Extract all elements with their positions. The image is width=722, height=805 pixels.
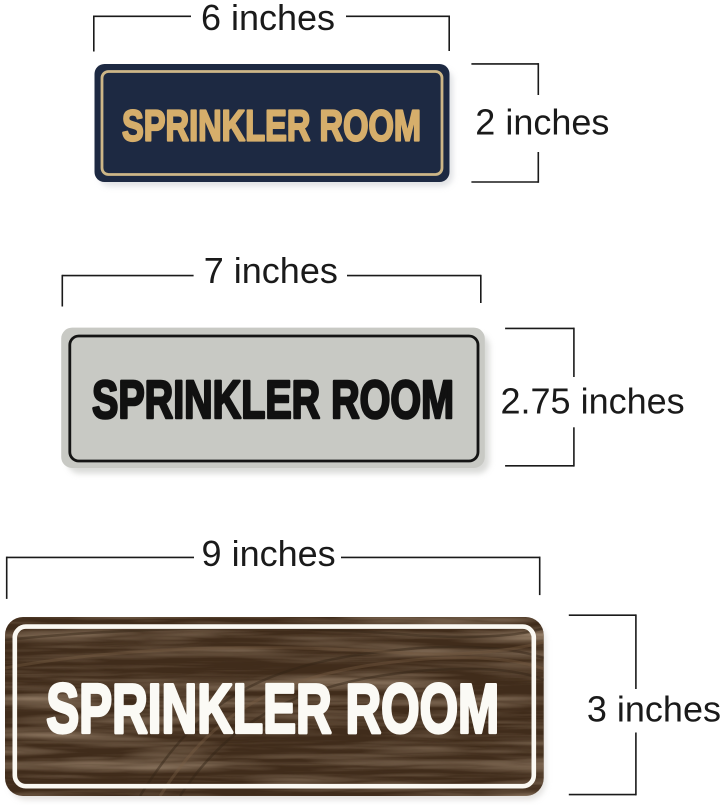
svg-text:2 inches: 2 inches: [475, 101, 609, 142]
svg-text:9 inches: 9 inches: [202, 533, 336, 574]
svg-text:3 inches: 3 inches: [587, 688, 721, 729]
svg-text:2.75 inches: 2.75 inches: [501, 380, 685, 421]
svg-text:7 inches: 7 inches: [204, 250, 338, 291]
svg-text:SPRINKLER ROOM: SPRINKLER ROOM: [46, 670, 499, 748]
svg-text:SPRINKLER ROOM: SPRINKLER ROOM: [92, 370, 454, 430]
svg-text:SPRINKLER ROOM: SPRINKLER ROOM: [122, 101, 421, 150]
svg-text:6 inches: 6 inches: [201, 0, 335, 38]
